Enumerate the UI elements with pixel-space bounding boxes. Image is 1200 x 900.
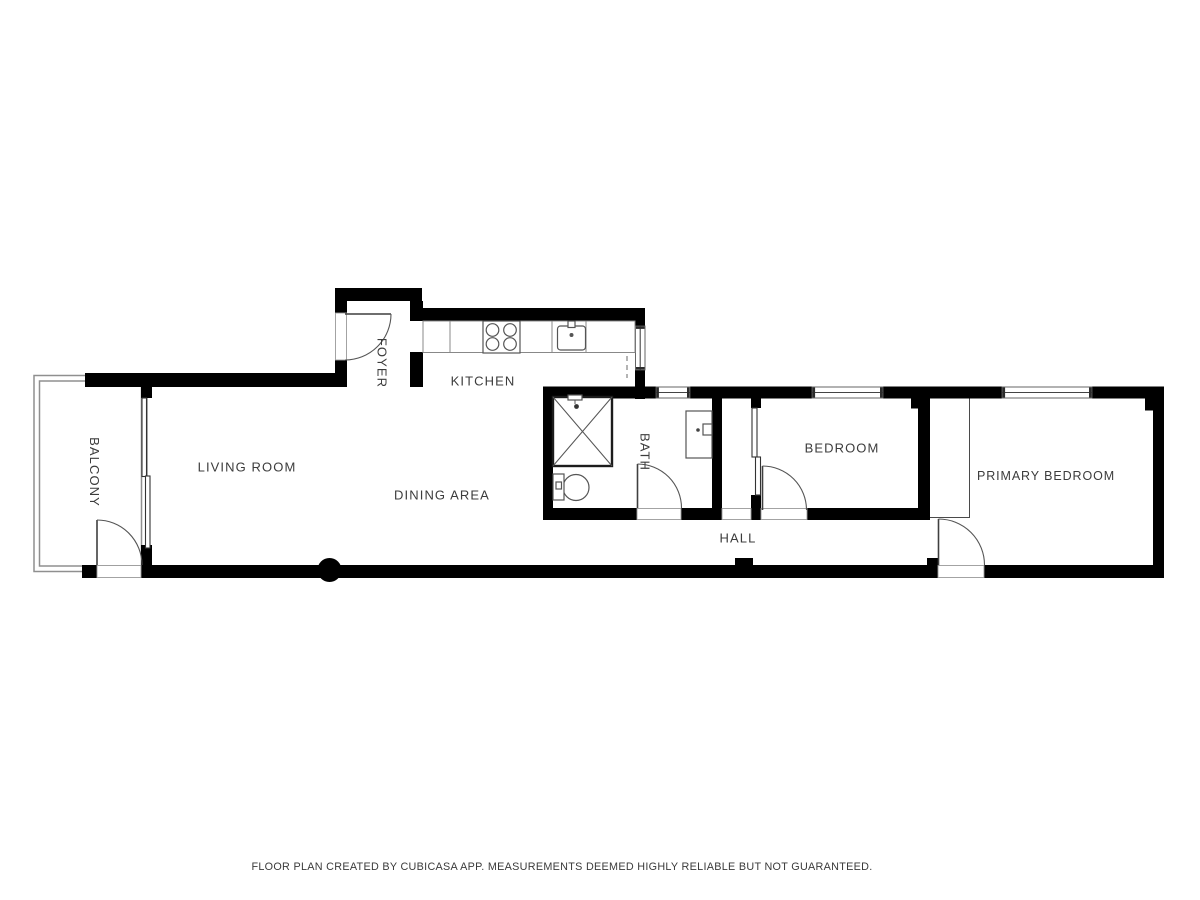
wall-segment <box>681 508 722 520</box>
wall-segment <box>911 399 918 409</box>
back-door <box>939 519 985 565</box>
room-label-dining-area: DINING AREA <box>394 488 490 503</box>
wall-segment <box>883 387 1002 399</box>
balcony-slider-panel <box>142 398 147 477</box>
balcony-slider-panel <box>146 476 151 548</box>
shower-icon <box>553 395 612 466</box>
bedroom-door-threshold <box>761 509 807 520</box>
room-label-primary-bedroom: PRIMARY BEDROOM <box>977 469 1115 483</box>
wall-segment <box>82 565 97 578</box>
wall-segment <box>690 387 812 399</box>
wall-segment <box>918 399 930 518</box>
bedroom-slider-panel <box>756 457 761 495</box>
floor-plan-page: BALCONY LIVING ROOM DINING AREA FOYER KI… <box>0 0 1200 900</box>
wall-nub <box>735 558 753 566</box>
room-label-hall: HALL <box>720 531 757 546</box>
wall-segment <box>317 565 342 578</box>
entry-door-threshold <box>336 313 347 360</box>
wall-segment <box>141 565 938 578</box>
wall-segment <box>85 373 335 387</box>
bathroom-sink-icon <box>686 411 712 458</box>
bath-fixtures <box>553 395 712 501</box>
back-door-threshold <box>938 566 984 578</box>
wall-segment <box>410 352 423 387</box>
kitchen-fixtures <box>423 321 635 378</box>
wall-segment <box>984 565 1163 578</box>
closet-lines <box>930 399 970 519</box>
wall-segment <box>1153 387 1164 579</box>
room-label-bedroom: BEDROOM <box>805 441 880 456</box>
wall-segment <box>751 495 761 520</box>
room-label-bath: BATH <box>638 433 653 471</box>
wall-segment <box>543 508 637 520</box>
balcony-door-threshold <box>97 566 141 578</box>
room-label-foyer: FOYER <box>375 338 390 388</box>
wall-segment <box>807 508 930 520</box>
room-label-living-room: LIVING ROOM <box>198 460 297 475</box>
bedroom-door <box>763 466 807 510</box>
wall-segment <box>410 308 645 321</box>
wall-segment <box>335 360 347 387</box>
window <box>656 387 690 398</box>
window <box>812 387 883 398</box>
wall-segment <box>543 399 553 521</box>
wall-segment <box>141 373 152 398</box>
window <box>636 326 646 370</box>
wall-segment <box>335 288 422 301</box>
floor-plan-drawing: BALCONY LIVING ROOM DINING AREA FOYER KI… <box>0 0 1200 900</box>
kitchen-counter <box>423 321 635 353</box>
wall-segment <box>751 399 761 409</box>
hall-nook-threshold <box>722 509 751 520</box>
room-label-balcony: BALCONY <box>87 437 102 507</box>
bath-door-threshold <box>637 509 681 520</box>
stove-icon <box>483 321 520 353</box>
window <box>1002 387 1092 398</box>
wall-segment <box>712 399 722 521</box>
wall-nub <box>927 558 939 566</box>
balcony-door <box>97 520 142 565</box>
toilet-icon <box>553 474 589 501</box>
room-label-kitchen: KITCHEN <box>451 374 516 389</box>
wall-segment <box>1145 399 1154 411</box>
bedroom-slider-panel <box>752 408 757 457</box>
wall-segment <box>1092 387 1163 399</box>
footer-disclaimer: FLOOR PLAN CREATED BY CUBICASA APP. MEAS… <box>251 861 872 873</box>
